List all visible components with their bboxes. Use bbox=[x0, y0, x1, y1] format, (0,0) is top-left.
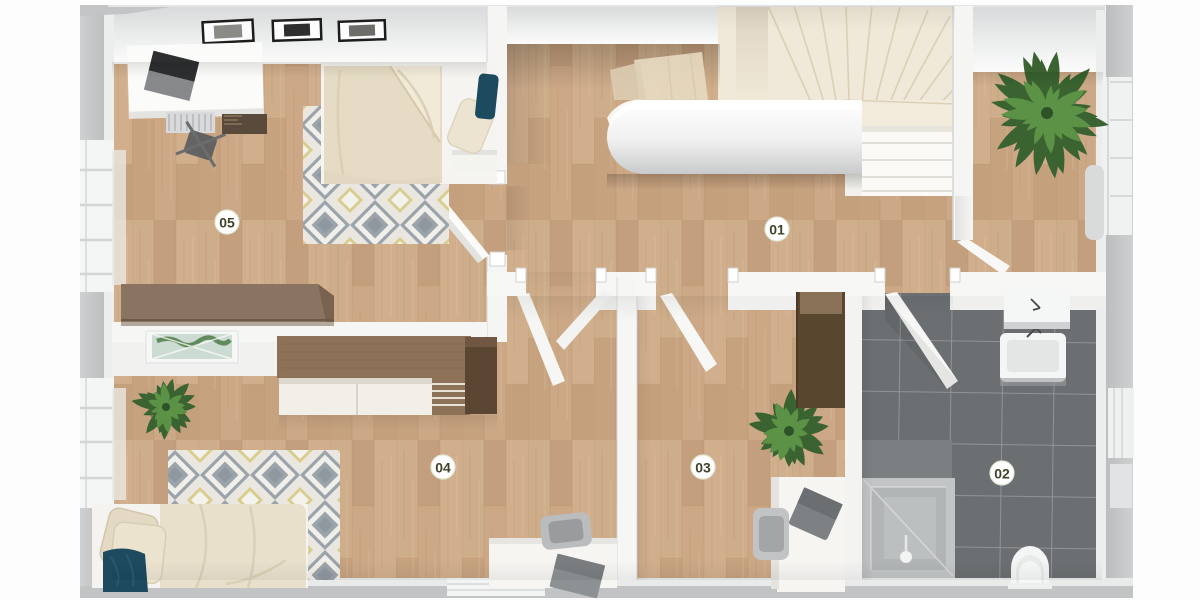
svg-text:03: 03 bbox=[695, 460, 711, 476]
svg-text:05: 05 bbox=[219, 215, 235, 231]
svg-text:01: 01 bbox=[769, 222, 785, 238]
svg-text:02: 02 bbox=[994, 466, 1010, 482]
svg-text:04: 04 bbox=[435, 460, 451, 476]
